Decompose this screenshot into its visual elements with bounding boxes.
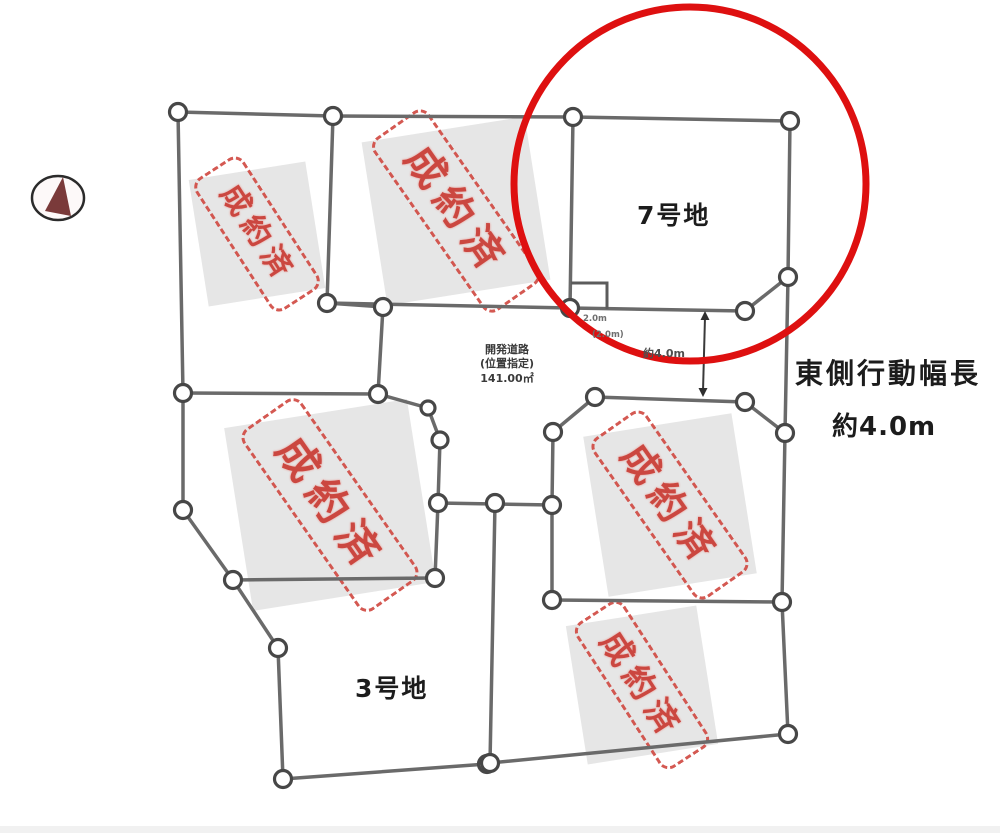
east-side-width-note-line1: 東側行動幅長 xyxy=(795,352,981,392)
notch-dimension-line2: (2.0m) xyxy=(592,330,624,340)
east-side-width-note-line2: 約4.0m xyxy=(832,406,936,443)
highlight-circle xyxy=(514,7,866,361)
plot7-label: 7号地 xyxy=(637,196,710,232)
plot-map-canvas: 成約済 成約済 成約済 成約済 成約済 xyxy=(0,0,1000,833)
notch-dimension-line1: 2.0m xyxy=(583,314,607,324)
plot3-label: 3号地 xyxy=(355,669,428,705)
image-bottom-edge xyxy=(0,826,1000,833)
gap-dimension-label: 約4.0m xyxy=(643,345,685,361)
road-note-line2: (位置指定) xyxy=(455,357,559,371)
road-note-line1: 開発道路 xyxy=(455,343,559,357)
road-note-line3: 141.00㎡ xyxy=(455,372,559,386)
road-note: 開発道路 (位置指定) 141.00㎡ xyxy=(455,343,559,386)
